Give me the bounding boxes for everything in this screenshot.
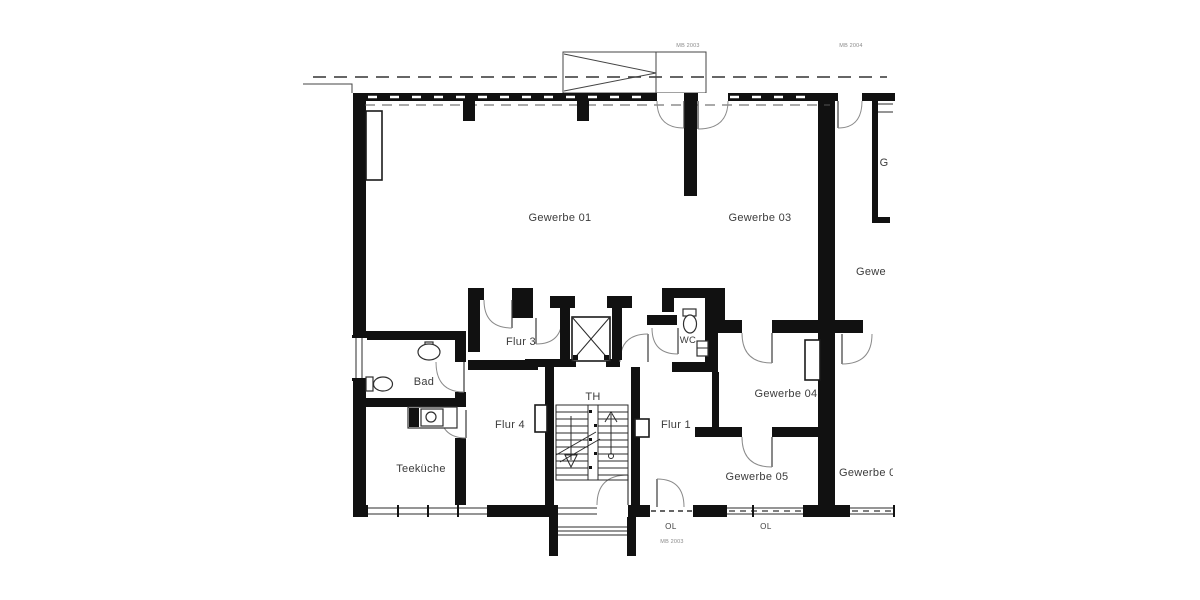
room-label-partial-mid: Gewe [856, 266, 886, 278]
pillar-niche [366, 111, 382, 180]
teekueche-right-wall [455, 438, 466, 505]
entrance-steps [558, 527, 627, 535]
room-label-gewerbe-05: Gewerbe 05 [726, 471, 789, 483]
kitchen-counter [408, 407, 457, 428]
ref-label-top-right: MB 2004 [839, 43, 862, 49]
bad-top-wall [360, 331, 455, 340]
door-swing [742, 437, 772, 467]
ref-label-bottom: MB 2003 [660, 539, 683, 545]
flur3-wall-step [512, 300, 533, 318]
gewerbe04-top-wall-right [772, 320, 863, 333]
door-swing [536, 318, 562, 344]
right-partition-wall [872, 95, 878, 220]
cutoff-room-lines [878, 104, 893, 112]
site-reference-lines [303, 52, 887, 93]
bad-toilet [366, 377, 393, 391]
left-wall-window [352, 338, 367, 378]
vestibule-right-wall [627, 517, 636, 556]
door-swing [838, 101, 862, 128]
room-label-gewerbe-03: Gewerbe 03 [729, 212, 792, 224]
floor-plan-sheet: Gewerbe 01 Gewerbe 03 Flur 3 WC Bad TH F… [0, 0, 1200, 600]
floor-plan-drawing: Gewerbe 01 Gewerbe 03 Flur 3 WC Bad TH F… [0, 0, 1200, 600]
door-swing [742, 333, 772, 363]
gewerbe04-05-divider-right [772, 427, 835, 437]
room-label-partial-bottom: Gewerbe 0 [839, 467, 896, 479]
ol-label-left: OL [665, 522, 677, 531]
approach-line [303, 84, 352, 93]
room-label-th: TH [585, 391, 600, 403]
left-exterior-wall [353, 93, 366, 517]
ol-label-right: OL [760, 522, 772, 531]
bad-right-wall-upper [455, 331, 466, 362]
door-gap [620, 359, 648, 367]
staircase [556, 405, 628, 480]
flur1-gewerbe04-wall [712, 372, 719, 428]
door-gap [657, 93, 684, 101]
gewerbe01-03-divider-wall [684, 93, 697, 196]
room-label-partial-top: G [880, 157, 889, 169]
column [463, 101, 475, 121]
wc-right-wall [705, 288, 718, 372]
door-swing [657, 479, 684, 507]
shaft-niche-right [635, 419, 649, 437]
canopy-outline [563, 52, 706, 93]
stairwell-left-wall [545, 367, 554, 505]
walls [353, 93, 895, 556]
column [577, 101, 589, 121]
bad-teekueche-divider [360, 398, 455, 407]
windows [352, 111, 893, 517]
right-main-wall [818, 95, 835, 517]
wc-toilet [683, 309, 697, 333]
door-gap [838, 93, 862, 101]
ref-label-top: MB 2003 [676, 43, 699, 49]
door-gap [484, 288, 512, 300]
room-label-wc: WC [680, 335, 696, 346]
room-label-teekueche: Teeküche [396, 463, 446, 475]
entrance-sidelight [558, 505, 597, 517]
vestibule-left-wall [549, 517, 558, 556]
right-partition-foot [872, 217, 890, 223]
room-label-flur-3: Flur 3 [506, 336, 536, 348]
wc-left-stub [662, 288, 674, 312]
bad-sink [418, 342, 440, 360]
gewerbe04-top-wall-left [715, 320, 742, 333]
room-label-flur-1: Flur 1 [661, 419, 691, 431]
room-label-gewerbe-04: Gewerbe 04 [755, 388, 818, 400]
entrance-door-gap [597, 505, 628, 517]
door-swing [436, 362, 464, 392]
door-swing [620, 334, 648, 362]
shaft-niche-left [535, 405, 547, 432]
door-swing [652, 328, 678, 354]
wc-left-wall [647, 315, 677, 325]
flur3-left-wall [468, 288, 480, 352]
doors [436, 101, 872, 507]
door-swing [484, 300, 512, 328]
elevator [550, 296, 632, 361]
wall-niche-gewerbe04 [805, 340, 820, 380]
gewerbe04-05-divider-left [695, 427, 742, 437]
room-label-gewerbe-01: Gewerbe 01 [529, 212, 592, 224]
room-label-flur-4: Flur 4 [495, 419, 525, 431]
bad-right-wall-lower [455, 392, 466, 407]
door-gap [698, 93, 728, 101]
wc-bottom-wall [672, 362, 708, 372]
room-label-bad: Bad [414, 376, 434, 388]
door-swing [842, 334, 872, 364]
